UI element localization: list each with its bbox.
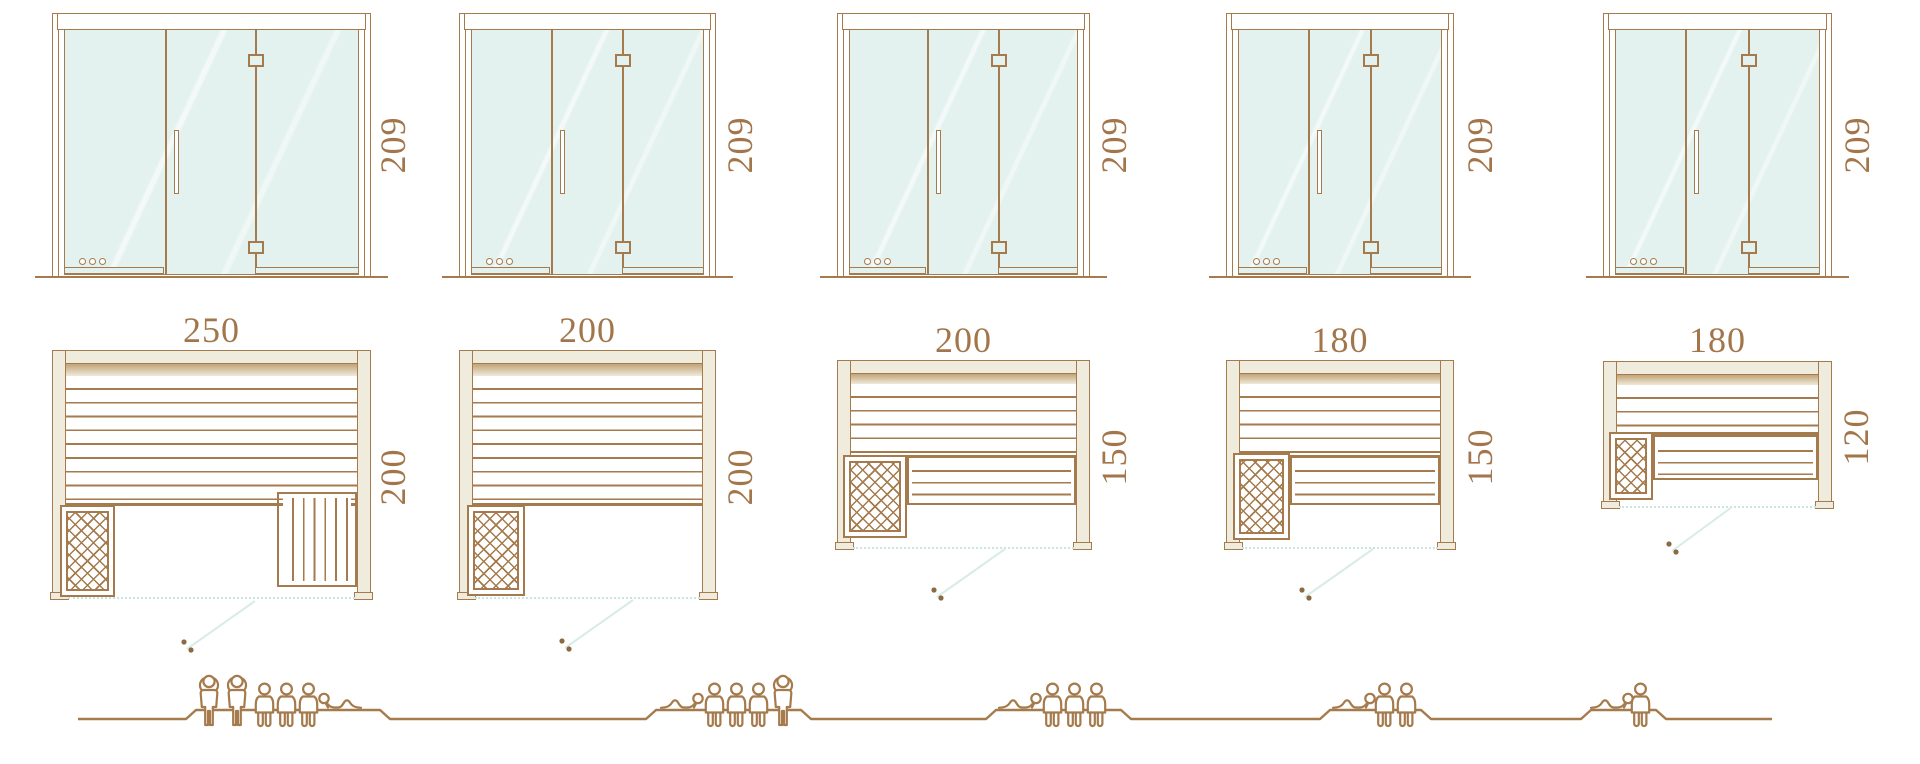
height-dimension-label: 209 (722, 105, 758, 185)
capacity-group-1 (200, 676, 361, 726)
capacity-group-5 (1591, 684, 1649, 726)
person-seated-icon (728, 684, 745, 726)
glass-front (849, 29, 1078, 275)
lower-bench (1290, 455, 1440, 505)
frame-lintel (1608, 13, 1827, 30)
hinge-icon (1363, 54, 1379, 67)
floor-plan (459, 350, 716, 600)
main-bench (851, 384, 1076, 458)
door-handle (1694, 130, 1699, 194)
frame-lintel (464, 13, 711, 30)
glass-divider (551, 30, 553, 274)
capacity-group-2 (661, 676, 792, 726)
wall-right (1076, 360, 1090, 544)
person-seated-icon (278, 684, 295, 726)
person-seated-icon (750, 684, 767, 726)
person-lying-icon (1333, 694, 1375, 708)
bottom-rail-right (255, 267, 359, 274)
wall-right (357, 350, 371, 594)
width-dimension-label: 180 (1603, 322, 1832, 358)
width-dimension-label: 250 (52, 312, 371, 348)
depth-dimension-label: 150 (1462, 417, 1498, 497)
ground-line (1586, 276, 1849, 278)
width-dimension-label: 180 (1226, 322, 1454, 358)
frame-lintel (57, 13, 366, 30)
frame-post-left (1226, 13, 1233, 277)
depth-dimension-label: 200 (722, 437, 758, 517)
capacity-row (0, 660, 1920, 764)
hinge-icon (248, 241, 264, 254)
person-seated-icon (300, 684, 317, 726)
glass-divider (927, 30, 929, 274)
vent-holes-icon (486, 258, 513, 265)
width-dimension-label: 200 (459, 312, 716, 348)
door-swing (1295, 545, 1385, 607)
glass-front (471, 29, 704, 275)
hinge-icon (1741, 54, 1757, 67)
wall-back (837, 360, 1090, 374)
frame-post-right (1083, 13, 1090, 277)
heater (60, 505, 115, 597)
person-seated-icon (706, 684, 723, 726)
door-swing (555, 596, 645, 658)
frame-post-right (709, 13, 716, 277)
person-seated-icon (1398, 684, 1415, 726)
person-seated-icon (1088, 684, 1105, 726)
frame-post-right (1447, 13, 1454, 277)
door-elevation (52, 13, 371, 277)
wall-back (459, 350, 716, 364)
bottom-rail-right (998, 267, 1078, 274)
frame-lintel (842, 13, 1085, 30)
heater (467, 505, 525, 596)
hinge-icon (615, 54, 631, 67)
door-elevation (837, 13, 1090, 277)
door-elevation (1226, 13, 1454, 277)
ground-line (442, 276, 733, 278)
door-swing (927, 545, 1017, 607)
hinge-icon (991, 54, 1007, 67)
frame-post-left (52, 13, 59, 277)
door-handle (936, 130, 941, 194)
door-elevation (459, 13, 716, 277)
person-seated-icon (1632, 684, 1649, 726)
frame-post-left (837, 13, 844, 277)
bottom-rail-left (471, 267, 550, 274)
wall-right (1440, 360, 1454, 544)
lower-bench (907, 455, 1076, 505)
person-standing-icon (774, 676, 792, 725)
person-standing-icon (200, 676, 218, 725)
frame-lintel (1231, 13, 1449, 30)
person-seated-icon (256, 684, 273, 726)
heater (1609, 432, 1653, 500)
frame-post-right (1825, 13, 1832, 277)
depth-dimension-label: 200 (375, 437, 411, 517)
vent-holes-icon (864, 258, 891, 265)
lower-bench (1653, 435, 1818, 480)
wall-back (1603, 361, 1832, 375)
person-lying-icon (661, 694, 703, 708)
ground-line (35, 276, 388, 278)
heater (843, 455, 907, 538)
glass-front (1238, 29, 1442, 275)
glass-divider (165, 30, 167, 274)
door-elevation (1603, 13, 1832, 277)
hinge-icon (615, 241, 631, 254)
capacity-group-4 (1333, 684, 1415, 726)
bottom-rail-left (64, 267, 164, 274)
glass-divider (1685, 30, 1687, 274)
bottom-rail-left (849, 267, 926, 274)
person-lying-icon (1591, 694, 1633, 708)
glass-front (1615, 29, 1820, 275)
side-bench (277, 492, 357, 587)
bottom-rail-right (622, 267, 704, 274)
glass-divider (1308, 30, 1310, 274)
ground-line (820, 276, 1107, 278)
sauna-size-comparison-diagram: 209 250 200 (0, 0, 1920, 764)
person-seated-icon (1044, 684, 1061, 726)
capacity-group-3 (999, 684, 1105, 726)
main-bench (473, 376, 702, 506)
heater (1233, 453, 1290, 540)
vent-holes-icon (1630, 258, 1657, 265)
wall-right (702, 350, 716, 594)
height-dimension-label: 209 (1462, 105, 1498, 185)
door-swing (177, 597, 267, 659)
ground-profile-line (78, 710, 1772, 719)
depth-dimension-label: 150 (1096, 417, 1132, 497)
hinge-icon (1741, 241, 1757, 254)
wall-back (52, 350, 371, 364)
floor-plan (1226, 360, 1454, 550)
bottom-rail-right (1370, 267, 1442, 274)
frame-post-right (364, 13, 371, 277)
door-handle (1317, 130, 1322, 194)
height-dimension-label: 209 (375, 105, 411, 185)
height-dimension-label: 209 (1096, 105, 1132, 185)
person-seated-icon (1376, 684, 1393, 726)
height-dimension-label: 209 (1839, 105, 1875, 185)
person-lying-icon (319, 694, 361, 708)
vent-holes-icon (79, 258, 106, 265)
frame-post-left (459, 13, 466, 277)
bottom-rail-right (1748, 267, 1820, 274)
person-lying-icon (999, 694, 1041, 708)
hinge-icon (248, 54, 264, 67)
hinge-icon (1363, 241, 1379, 254)
vent-holes-icon (1253, 258, 1280, 265)
floor-plan (52, 350, 371, 600)
main-bench (1617, 385, 1818, 435)
main-bench (66, 376, 357, 506)
floor-plan (837, 360, 1090, 550)
ground-line (1209, 276, 1471, 278)
wall-back (1226, 360, 1454, 374)
door-swing (1662, 503, 1742, 559)
bottom-rail-left (1615, 267, 1684, 274)
wall-right (1818, 361, 1832, 503)
width-dimension-label: 200 (837, 322, 1090, 358)
person-seated-icon (1066, 684, 1083, 726)
frame-post-left (1603, 13, 1610, 277)
hinge-icon (991, 241, 1007, 254)
floor-plan (1603, 361, 1832, 509)
door-handle (560, 130, 565, 194)
bottom-rail-left (1238, 267, 1307, 274)
depth-dimension-label: 120 (1838, 397, 1874, 477)
door-handle (174, 130, 179, 194)
glass-front (64, 29, 359, 275)
person-standing-icon (228, 676, 246, 725)
main-bench (1240, 384, 1440, 458)
